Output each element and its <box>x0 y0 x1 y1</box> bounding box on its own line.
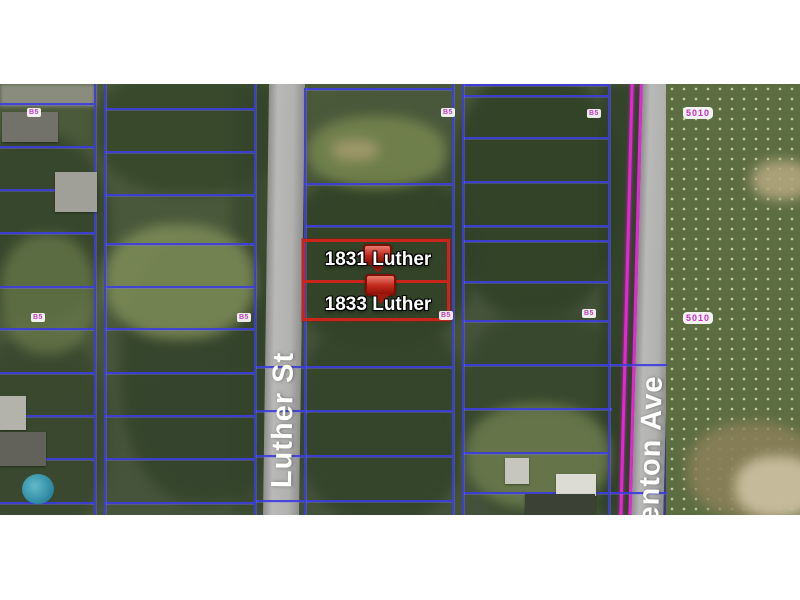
parcel-boundary-line <box>94 84 96 515</box>
parcel-boundary-line <box>0 232 94 234</box>
dirt-patch <box>735 456 800 515</box>
parcel-boundary-line <box>608 84 610 515</box>
lot-id-badge: B5 <box>237 313 251 322</box>
street-label-kenton: enton Ave <box>628 349 673 515</box>
tree-canopy <box>450 84 620 319</box>
parcel-boundary-line <box>104 108 254 110</box>
parcel-boundary-line <box>462 137 608 139</box>
parcel-boundary-line <box>462 84 608 86</box>
parcel-boundary-line <box>462 452 608 454</box>
parcel-boundary-line <box>104 151 254 153</box>
lot-id-badge: B5 <box>582 309 596 318</box>
street-label-luther: Luther St <box>262 320 305 515</box>
parcel-boundary-line <box>462 240 608 242</box>
parcel-boundary-line <box>104 372 254 374</box>
parcel-boundary-line <box>0 146 94 148</box>
parcel-boundary-line <box>254 84 256 515</box>
parcel-boundary-line <box>304 88 452 90</box>
building-roof <box>525 494 595 515</box>
parcel-boundary-line <box>104 84 106 515</box>
building-roof <box>0 432 46 466</box>
parcel-boundary-line <box>462 181 608 183</box>
building-roof <box>0 396 26 430</box>
parcel-boundary-line <box>0 502 94 504</box>
parcel-boundary-line <box>104 502 254 504</box>
parcel-boundary-line <box>0 372 94 374</box>
screenshot-canvas: Luther St enton Ave 1831 Luther 1833 Lut… <box>0 0 800 600</box>
building-roof <box>55 172 97 212</box>
parcel-boundary-line <box>0 328 94 330</box>
building-roof <box>556 474 596 496</box>
grass-patch <box>105 224 255 339</box>
lot-id-badge: B5 <box>439 311 453 320</box>
parcel-boundary-line <box>462 225 608 227</box>
parcel-boundary-line <box>462 95 608 97</box>
tree-canopy <box>295 314 470 515</box>
parcel-boundary-line <box>462 281 608 283</box>
parcel-label-1831: 1831 Luther <box>298 249 458 271</box>
parcel-label-1833: 1833 Luther <box>298 294 458 316</box>
parcel-boundary-line <box>0 286 94 288</box>
parcel-boundary-line <box>104 243 254 245</box>
lot-id-badge: B5 <box>587 109 601 118</box>
parcel-boundary-line <box>104 415 254 417</box>
parcel-boundary-line <box>104 328 254 330</box>
parcel-boundary-line <box>0 103 94 105</box>
lot-id-badge: B5 <box>31 313 45 322</box>
parcel-boundary-line <box>462 408 612 410</box>
lot-id-badge: B5 <box>441 108 455 117</box>
parcel-boundary-line <box>104 286 254 288</box>
parcel-boundary-line <box>104 194 254 196</box>
parcel-boundary-line <box>104 458 254 460</box>
swimming-pool <box>22 474 54 504</box>
dirt-patch <box>331 139 379 161</box>
parcel-boundary-line <box>304 183 452 185</box>
map-marker-pin-1833[interactable] <box>365 274 396 296</box>
building-roof <box>505 458 529 484</box>
parcel-boundary-line <box>462 320 608 322</box>
route-id-badge: 5010 <box>683 312 713 324</box>
parcel-boundary-line <box>462 84 464 515</box>
lot-id-badge: B5 <box>27 108 41 117</box>
dirt-patch <box>752 160 800 200</box>
grass-patch <box>0 234 95 354</box>
parcel-boundary-line <box>304 225 452 227</box>
aerial-map[interactable]: Luther St enton Ave 1831 Luther 1833 Lut… <box>0 84 800 515</box>
route-id-badge: 5010 <box>683 107 713 119</box>
